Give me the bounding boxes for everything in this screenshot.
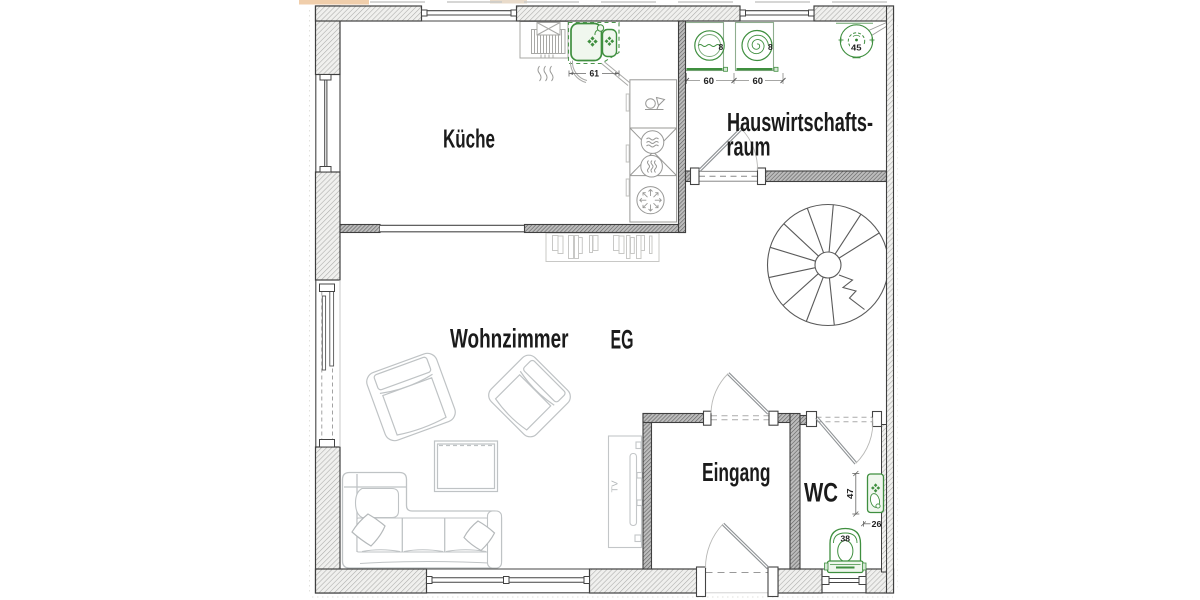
svg-text:EG: EG [611, 325, 634, 355]
svg-text:45: 45 [851, 43, 862, 53]
svg-text:Eingang: Eingang [702, 457, 771, 487]
svg-text:Wohnzimmer: Wohnzimmer [450, 324, 569, 354]
svg-text:61: 61 [590, 69, 600, 79]
svg-text:raum: raum [727, 134, 771, 162]
svg-text:60: 60 [704, 76, 715, 86]
svg-text:60: 60 [753, 76, 764, 86]
svg-text:8: 8 [768, 42, 773, 52]
svg-text:8: 8 [719, 42, 724, 52]
svg-text:Küche: Küche [443, 124, 495, 154]
svg-text:26: 26 [872, 519, 882, 529]
svg-text:47: 47 [845, 488, 855, 499]
svg-text:WC: WC [804, 478, 838, 508]
svg-text:TV: TV [611, 480, 620, 493]
svg-text:38: 38 [841, 535, 851, 544]
